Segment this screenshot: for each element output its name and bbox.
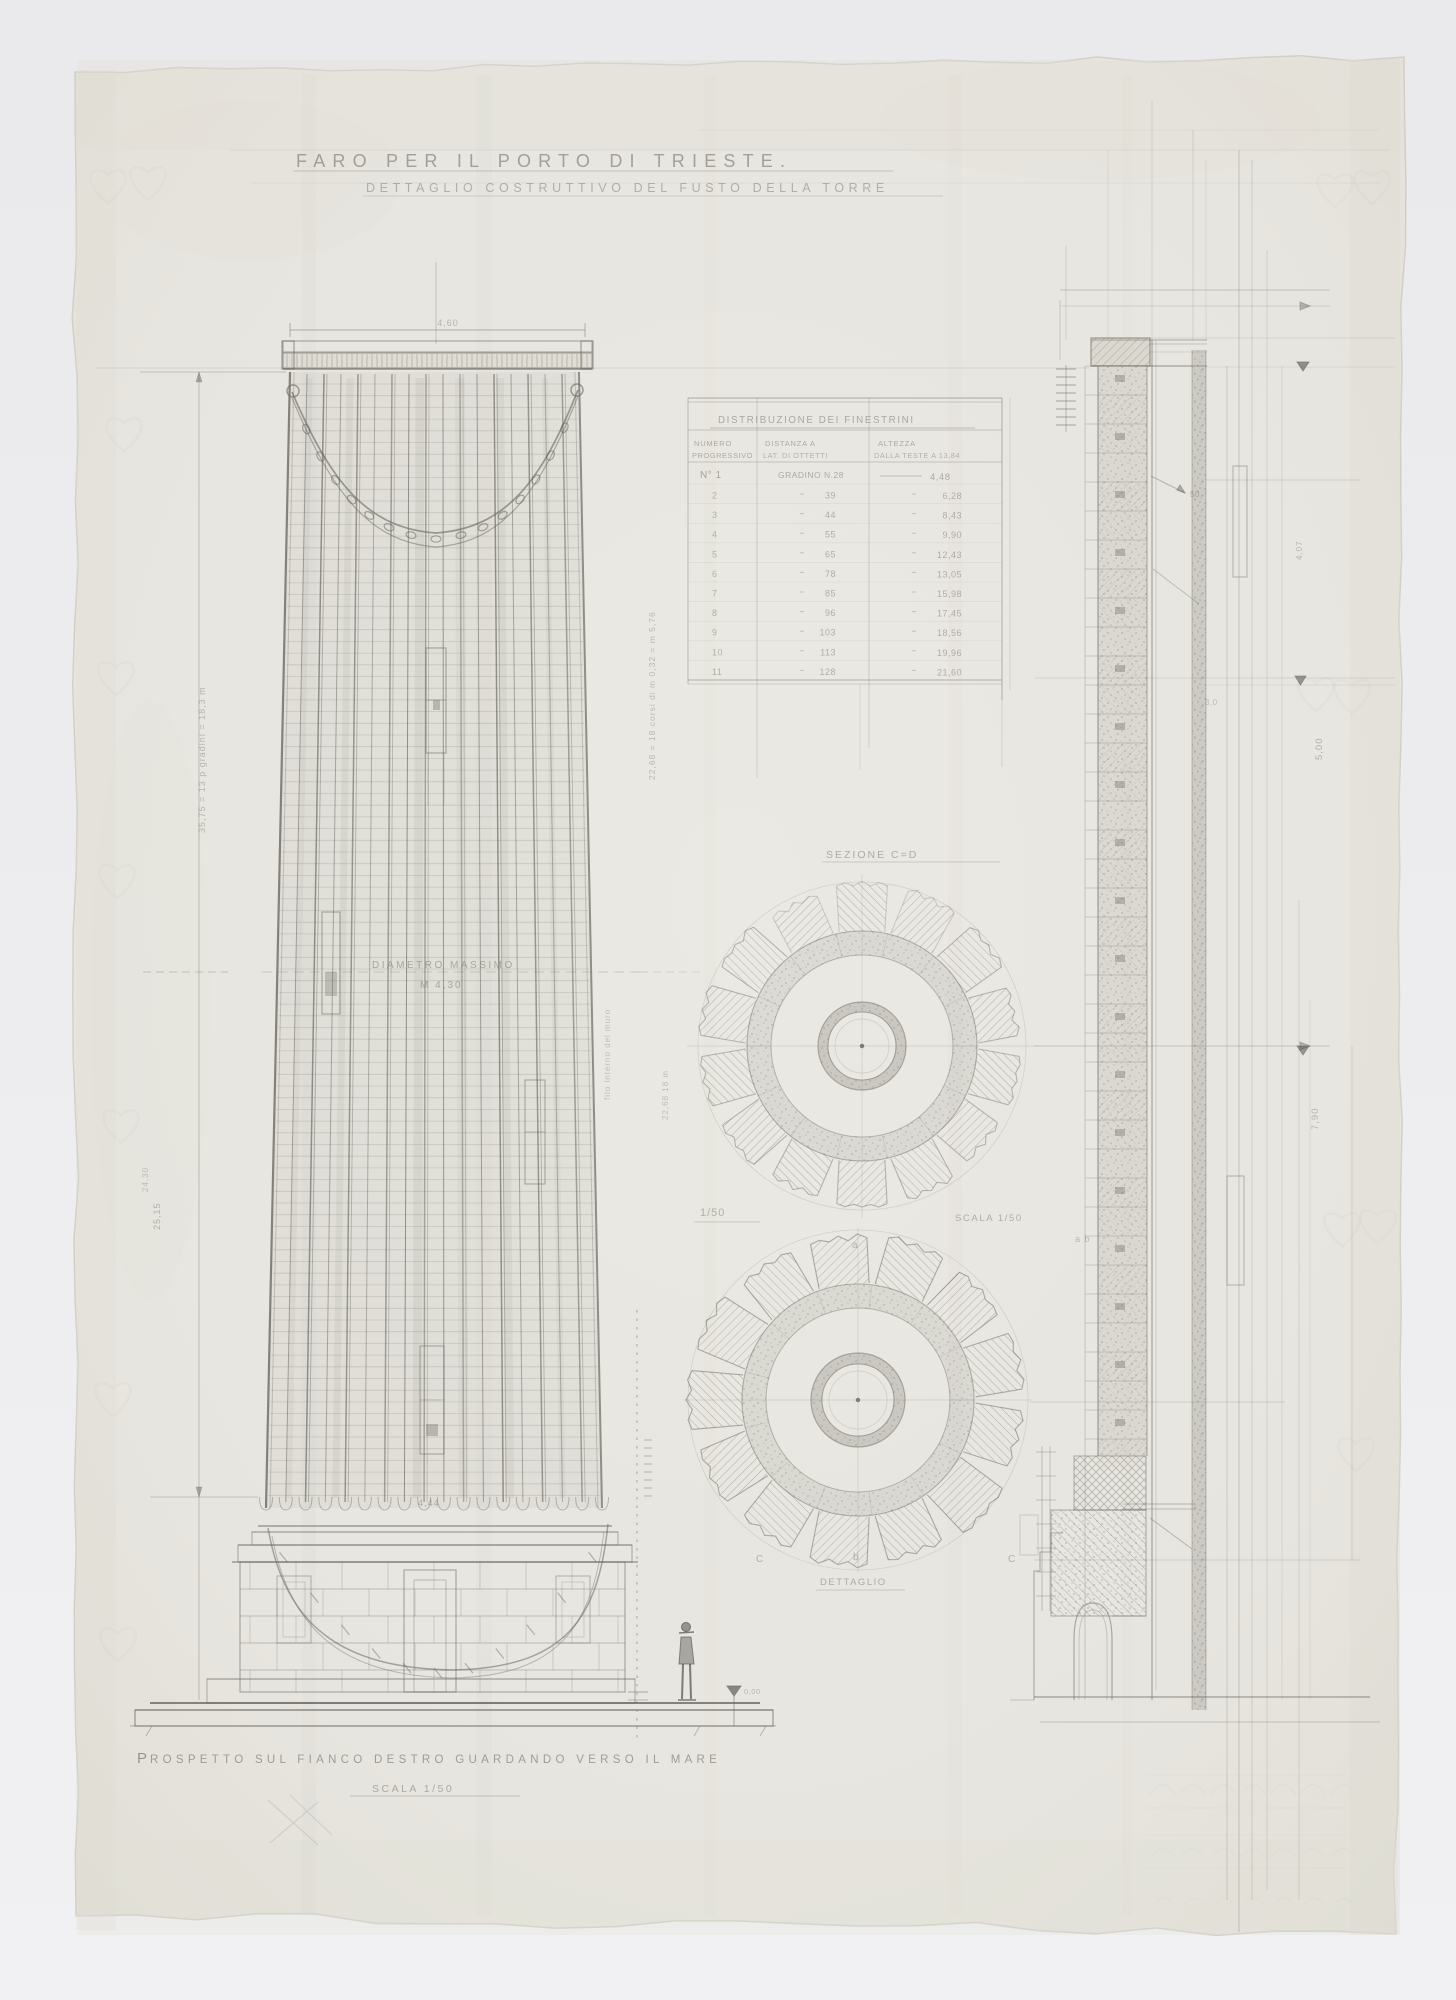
svg-text:filo interno del muro: filo interno del muro <box>603 1009 612 1100</box>
svg-text:DISTRIBUZIONE DEI FINESTRINI: DISTRIBUZIONE DEI FINESTRINI <box>718 415 915 426</box>
svg-text:8: 8 <box>712 608 718 618</box>
svg-text:b: b <box>853 1552 859 1563</box>
svg-text:25,15: 25,15 <box>152 1202 162 1230</box>
svg-text:SCALA 1/50: SCALA 1/50 <box>955 1213 1023 1224</box>
svg-text:C: C <box>1008 1554 1015 1565</box>
svg-text:PROGRESSIVO: PROGRESSIVO <box>692 451 753 460</box>
svg-text:M 4,30: M 4,30 <box>420 980 463 991</box>
svg-text:DISTANZA A: DISTANZA A <box>765 439 816 448</box>
svg-text:5,00: 5,00 <box>1314 738 1325 761</box>
svg-text:18,56: 18,56 <box>937 628 962 638</box>
svg-text:1/50: 1/50 <box>700 1207 725 1219</box>
svg-text:2: 2 <box>712 491 718 501</box>
svg-text:128: 128 <box>819 667 836 677</box>
svg-text:35,75 = 13 p gradini = 18,3 m: 35,75 = 13 p gradini = 18,3 m <box>197 686 207 833</box>
svg-text:24,30: 24,30 <box>141 1167 150 1192</box>
svg-text:50: 50 <box>1190 490 1200 499</box>
svg-text:19,96: 19,96 <box>937 648 962 658</box>
svg-text:GRADINO N.28: GRADINO N.28 <box>778 470 844 480</box>
svg-text:12,43: 12,43 <box>937 550 962 560</box>
svg-text:4,60: 4,60 <box>437 318 459 328</box>
svg-text:65: 65 <box>825 549 836 559</box>
svg-text:N° 1: N° 1 <box>700 470 722 481</box>
svg-text:3,0: 3,0 <box>1205 698 1218 707</box>
svg-text:85: 85 <box>825 589 836 599</box>
svg-text:DALLA TESTE A 13,84: DALLA TESTE A 13,84 <box>874 451 960 460</box>
svg-text:10: 10 <box>712 647 723 657</box>
svg-text:C: C <box>756 1554 763 1565</box>
svg-text:13,05: 13,05 <box>937 569 962 579</box>
svg-text:44: 44 <box>825 510 836 520</box>
svg-text:39: 39 <box>825 491 836 501</box>
svg-text:6: 6 <box>712 569 718 579</box>
svg-text:8,43: 8,43 <box>942 511 962 521</box>
svg-text:4: 4 <box>712 530 718 540</box>
svg-text:DETTAGLIO COSTRUTTIVO DEL FUST: DETTAGLIO COSTRUTTIVO DEL FUSTO DELLA TO… <box>366 181 889 195</box>
svg-text:113: 113 <box>820 647 836 657</box>
svg-text:a b: a b <box>1075 1234 1091 1244</box>
svg-text:21,60: 21,60 <box>937 667 962 677</box>
svg-text:9,90: 9,90 <box>942 530 962 540</box>
svg-text:4,07: 4,07 <box>1295 540 1304 560</box>
svg-text:22,68 18 m: 22,68 18 m <box>661 1070 670 1120</box>
svg-text:0,00: 0,00 <box>744 1687 761 1696</box>
svg-text:9: 9 <box>712 628 718 638</box>
svg-text:FARO PER IL PORTO DI TRIESTE.: FARO PER IL PORTO DI TRIESTE. <box>296 151 792 171</box>
svg-text:96: 96 <box>825 608 836 618</box>
svg-text:P: P <box>137 1750 149 1767</box>
svg-text:78: 78 <box>825 569 836 579</box>
svg-text:15,98: 15,98 <box>937 589 962 599</box>
svg-text:3: 3 <box>712 510 718 520</box>
svg-text:SEZIONE C=D: SEZIONE C=D <box>826 849 918 861</box>
svg-text:LAT. DI OTTETTI: LAT. DI OTTETTI <box>763 451 828 460</box>
svg-text:ROSPETTO SUL FIANCO DESTRO GUA: ROSPETTO SUL FIANCO DESTRO GUARDANDO VER… <box>150 1754 721 1766</box>
svg-text:22,68 = 18 corsi di m 0,32 = m: 22,68 = 18 corsi di m 0,32 = m 5,76 <box>647 611 657 780</box>
svg-text:11: 11 <box>712 667 722 677</box>
svg-text:ALTEZZA: ALTEZZA <box>878 439 916 448</box>
svg-text:DIAMETRO MASSIMO: DIAMETRO MASSIMO <box>372 960 515 971</box>
svg-text:SCALA 1/50: SCALA 1/50 <box>372 1783 454 1795</box>
svg-text:6,28: 6,28 <box>942 491 962 501</box>
svg-text:NUMERO: NUMERO <box>694 439 732 448</box>
svg-text:103: 103 <box>819 628 836 638</box>
svg-text:7,90: 7,90 <box>1310 1108 1321 1131</box>
svg-text:7: 7 <box>712 589 718 599</box>
svg-text:55: 55 <box>825 530 836 540</box>
svg-text:17,45: 17,45 <box>937 609 962 619</box>
svg-text:4,48: 4,48 <box>930 472 951 483</box>
svg-text:a: a <box>852 1240 858 1251</box>
svg-text:5: 5 <box>712 549 718 559</box>
svg-text:4,44: 4,44 <box>418 1498 440 1508</box>
svg-text:DETTAGLIO: DETTAGLIO <box>820 1577 887 1588</box>
